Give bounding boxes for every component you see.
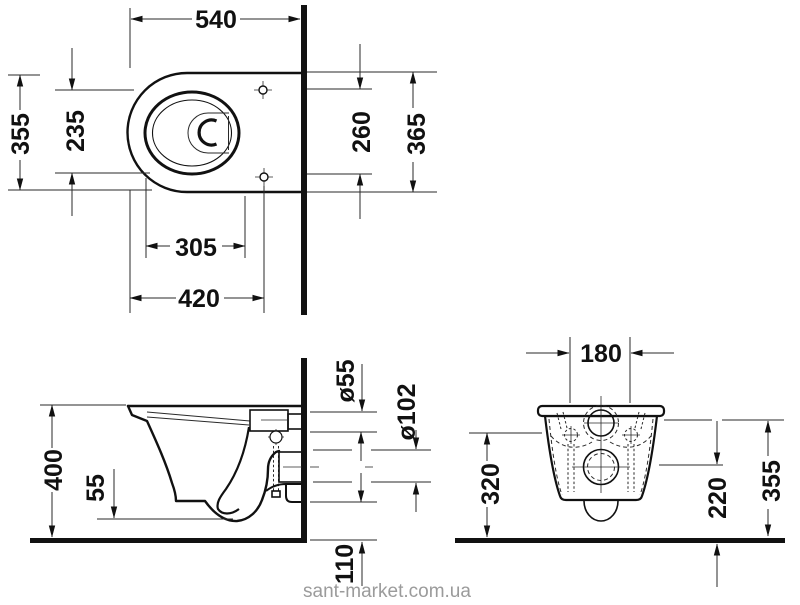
dim-label-dia55: ø55 bbox=[332, 359, 360, 402]
technical-drawing-canvas: 540 355 235 260 bbox=[0, 0, 800, 605]
flush-inlet-side bbox=[250, 410, 302, 431]
trap-bump-front bbox=[584, 501, 618, 521]
front-view: 180 320 220 355 bbox=[455, 337, 786, 587]
dim-label-220: 220 bbox=[704, 477, 732, 519]
dim-label-dia102: ø102 bbox=[393, 384, 421, 441]
wall-line-plan bbox=[301, 5, 307, 315]
dim-110: 110 bbox=[310, 540, 377, 586]
side-view: 400 55 ø55 bbox=[30, 358, 431, 586]
floor-line-side bbox=[30, 538, 307, 543]
dim-55: 55 bbox=[82, 469, 233, 519]
dim-label-355-front: 355 bbox=[758, 460, 786, 502]
dim-355-front: 355 bbox=[758, 421, 786, 536]
rim-inner-line-2 bbox=[147, 417, 249, 425]
watermark-text: sant-market.com.ua bbox=[303, 581, 471, 602]
dim-dia102: ø102 bbox=[310, 384, 431, 512]
bowl-outline-plan bbox=[128, 73, 302, 192]
dim-260: 260 bbox=[307, 44, 376, 219]
bowl-inner-side bbox=[217, 427, 249, 514]
wall-line-side bbox=[301, 358, 307, 543]
bowl-underside-side bbox=[128, 406, 279, 521]
dim-label-260: 260 bbox=[348, 111, 376, 153]
dim-dia55: ø55 bbox=[310, 359, 377, 412]
fixing-bolt-side bbox=[268, 429, 284, 497]
dim-400: 400 bbox=[40, 405, 126, 537]
dim-label-235: 235 bbox=[62, 110, 90, 152]
dim-320: 320 bbox=[469, 433, 542, 537]
top-view: 540 355 235 260 bbox=[7, 5, 437, 315]
dim-label-110: 110 bbox=[331, 544, 359, 584]
dim-label-540: 540 bbox=[195, 6, 237, 34]
rim-inner-line-1 bbox=[147, 412, 250, 421]
outlet-pipe-side bbox=[279, 452, 302, 482]
floor-line-front bbox=[455, 538, 785, 543]
dim-label-55: 55 bbox=[82, 474, 110, 502]
dim-label-420: 420 bbox=[178, 285, 220, 313]
dim-label-180: 180 bbox=[580, 340, 622, 368]
dim-180: 180 bbox=[526, 337, 674, 403]
toilet-dimension-drawing: 540 355 235 260 bbox=[0, 0, 800, 605]
dim-label-400: 400 bbox=[40, 449, 68, 491]
dim-220: 220 bbox=[659, 420, 784, 587]
dim-label-355-plan: 355 bbox=[7, 113, 35, 155]
dim-label-320: 320 bbox=[477, 463, 505, 505]
dim-label-365: 365 bbox=[403, 113, 431, 155]
dim-label-305: 305 bbox=[175, 234, 217, 262]
